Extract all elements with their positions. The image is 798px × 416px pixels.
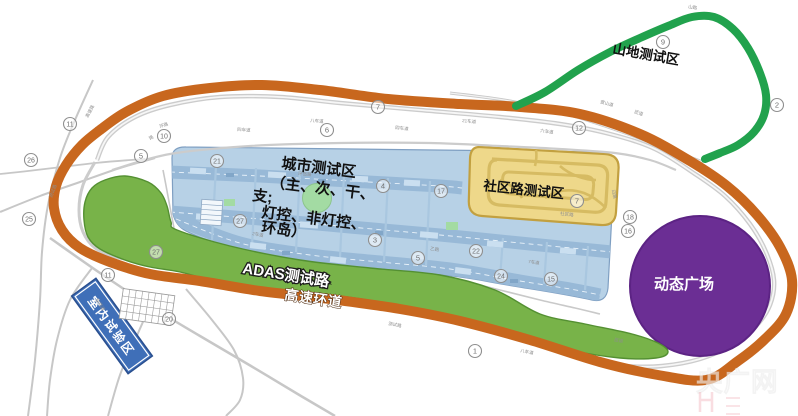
svg-text:7: 7 [575, 197, 579, 206]
svg-text:27: 27 [236, 219, 244, 226]
svg-text:15: 15 [547, 277, 555, 284]
svg-text:22: 22 [472, 249, 480, 256]
svg-text:18: 18 [626, 215, 634, 222]
svg-text:4: 4 [381, 182, 385, 191]
svg-text:6: 6 [325, 126, 329, 135]
svg-text:12: 12 [575, 126, 583, 133]
svg-text:5: 5 [139, 152, 143, 161]
svg-text:11: 11 [66, 122, 73, 129]
svg-text:1: 1 [473, 347, 477, 356]
svg-text:21: 21 [213, 159, 221, 166]
svg-text:25: 25 [25, 217, 33, 224]
svg-text:3: 3 [373, 236, 377, 245]
svg-text:10: 10 [160, 134, 168, 141]
svg-text:央广网: 央广网 [696, 367, 779, 397]
svg-text:24: 24 [497, 274, 505, 281]
svg-text:27: 27 [152, 250, 160, 257]
svg-text:9: 9 [661, 38, 665, 47]
svg-text:17: 17 [437, 189, 445, 196]
svg-text:5: 5 [416, 254, 420, 263]
svg-text:20: 20 [165, 317, 173, 324]
svg-text:2: 2 [775, 101, 779, 110]
svg-text:16: 16 [624, 229, 632, 236]
svg-text:动态广场: 动态广场 [654, 275, 714, 293]
svg-text:7: 7 [376, 103, 380, 112]
svg-text:26: 26 [27, 158, 35, 165]
svg-text:11: 11 [104, 273, 111, 280]
